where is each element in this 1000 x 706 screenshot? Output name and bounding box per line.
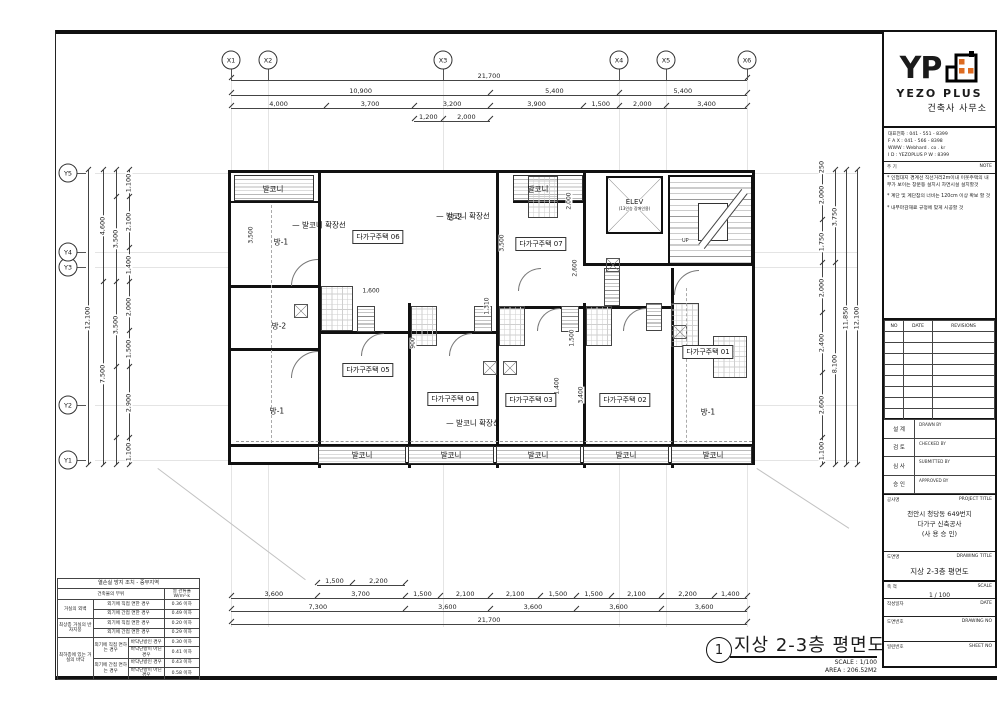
dim-label: 10,900: [349, 87, 372, 95]
thermal-col-part: 건축물의 부위: [58, 589, 165, 600]
room-label: — 발코니 확장선: [446, 418, 500, 429]
dim-tick: [86, 462, 92, 468]
room-label: 방-2: [272, 321, 286, 332]
contact-line: I D : YEZOPLUS P W : 8399: [888, 152, 991, 159]
dim-label: 2,000: [126, 296, 133, 317]
dim-tick: [114, 462, 120, 468]
floor-plan: ELEV(13인승 장애인용)UP발코니발코니— 발코니 확장선— 발코니 확장…: [228, 170, 755, 465]
dim-tick: [745, 606, 751, 612]
interior-wall: [583, 173, 586, 265]
unit-label: 다가구주택 06: [352, 230, 403, 244]
signoff-label-ko: 심 사: [884, 457, 915, 475]
dim-label: 1,400: [721, 590, 740, 598]
dim-label: 3,750: [832, 206, 839, 227]
drawing-number-circle: 1: [706, 637, 732, 663]
thermal-cond: 외기에 간접 면한 경우: [93, 628, 164, 637]
revision-cell: [885, 398, 904, 409]
revision-cell: [933, 387, 995, 398]
revision-cell: [904, 343, 933, 354]
note-label-en: NOTE: [979, 164, 992, 170]
grid-bubble-x1: X1: [222, 51, 241, 70]
dim-line: [317, 585, 405, 586]
scale-section: 축 척SCALE 1 / 100: [884, 582, 995, 599]
revision-cell: [885, 409, 904, 420]
grid-bubble-y5: Y5: [59, 164, 78, 183]
grid-bubble-y2: Y2: [59, 396, 78, 415]
washer-box: [673, 325, 687, 339]
dim-chain-r4: 12,100: [852, 170, 862, 465]
dim-tick: [488, 116, 494, 122]
signoff-label-ko: 승 인: [884, 476, 915, 494]
unit-label: 다가구주택 01: [682, 345, 733, 359]
dim-chain-t2: 10,9005,4005,400: [231, 87, 747, 97]
room-label: 발코니: [352, 450, 373, 461]
thermal-sub: 바닥난방이 아닌 경우: [129, 668, 165, 679]
dim-chain-r1: 2502,0001,7502,0002,4002,6001,100: [817, 164, 827, 465]
thermal-val: 0.58 이하: [164, 668, 200, 679]
grid-bubble-x2: X2: [259, 51, 278, 70]
dim-label: 4,000: [269, 100, 288, 108]
bathroom-tile: [499, 306, 525, 346]
revision-row: [885, 365, 995, 376]
thermal-val: 0.30 이하: [164, 637, 200, 646]
thermal-cond: 외기에 직접 면한 경우: [93, 600, 164, 609]
dim-label: 1,500: [325, 577, 344, 585]
company-name: YEZO PLUS: [896, 87, 982, 100]
bathroom-tile: [586, 306, 612, 346]
door-swing-arc: [518, 268, 541, 291]
dim-label: 21,700: [478, 616, 501, 624]
dim-label: 12,100: [85, 305, 92, 330]
revisions-table: NO DATE REVISIONS: [884, 320, 995, 420]
dim-label: 1,100: [126, 441, 133, 462]
kitchen-counter: [646, 303, 662, 331]
dim-chain-t1: 21,700: [231, 72, 747, 82]
dim-label: 2,000: [819, 185, 826, 206]
thermal-val: 0.36 이하: [164, 600, 200, 609]
grid-stem: [77, 460, 86, 461]
grid-stem: [77, 267, 86, 268]
date-label-ko: 작성일자: [887, 601, 904, 607]
thermal-cond: 외기에 간접 면하는 경우: [93, 658, 129, 679]
note-label-ko: 주 기: [887, 164, 897, 170]
kitchen-counter: [357, 306, 375, 332]
revision-cell: [885, 354, 904, 365]
dim-label: 3,600: [609, 603, 628, 611]
door-swing-arc: [449, 333, 472, 356]
company-subtitle: 건축사 사무소: [927, 101, 987, 114]
dim-label: 7,300: [308, 603, 327, 611]
project-line: (사 용 승 인): [884, 529, 995, 539]
dim-label: 12,100: [854, 305, 861, 330]
logo-yp-text: YP: [900, 55, 942, 83]
door-swing-arc: [291, 259, 318, 286]
dim-label: 1,500: [584, 590, 603, 598]
elevator-sublabel: (13인승 장애인용): [619, 206, 651, 211]
dim-label: 2,200: [678, 590, 697, 598]
revision-cell: [933, 365, 995, 376]
date-label-en: DATE: [980, 601, 992, 607]
drawing-label-en: DRAWING TITLE: [957, 554, 992, 560]
revision-cell: [904, 365, 933, 376]
drawing-no-section: 도면번호DRAWING NO: [884, 617, 995, 642]
inline-dim-label: 1,310: [484, 297, 491, 314]
dim-label: 3,600: [264, 590, 283, 598]
inline-dim-label: 3,400: [578, 386, 585, 403]
inline-dim-label: 3,500: [499, 234, 506, 251]
grid-bubble-y1: Y1: [59, 451, 78, 470]
grid-bubble-x4: X4: [610, 51, 629, 70]
signoff-label-en: DRAWN BY: [915, 420, 995, 438]
room-label: 발코니: [616, 450, 637, 461]
dim-tick: [820, 462, 826, 468]
washer-box: [483, 361, 497, 375]
dim-label: 2,400: [819, 333, 826, 354]
dim-label: 3,600: [695, 603, 714, 611]
dim-label: 21,700: [478, 72, 501, 80]
thermal-val: 0.43 이하: [164, 658, 200, 667]
dim-line: [822, 164, 823, 465]
dim-line: [231, 108, 747, 109]
drawing-title-section: 도면명DRAWING TITLE 지상 2-3층 평면도: [884, 552, 995, 582]
washer-box: [606, 258, 620, 272]
thermal-u-unit: W/m²·k: [173, 594, 190, 599]
drawing-sheet: { "colors": {"line": "#111111", "accent_…: [0, 0, 1000, 706]
dim-label: 3,400: [697, 100, 716, 108]
dim-label: 3,200: [443, 100, 462, 108]
dim-label: 2,100: [126, 212, 133, 233]
dim-chain-l4: 1,1002,1001,4002,0001,5002,9001,100: [124, 170, 134, 465]
drawing-title-text: 지상 2-3층 평면도: [734, 631, 885, 657]
revision-row: [885, 332, 995, 343]
thermal-cond: 외기에 간접 면한 경우: [93, 609, 164, 618]
dim-label: 4,600: [100, 216, 107, 237]
note-item: 인접대지 경계선 직선거리2m이내 이웃주택의 내부가 보이는 창문등 설치시 …: [887, 176, 992, 189]
project-line: 다가구 신축공사: [884, 519, 995, 529]
dim-tick: [745, 593, 751, 599]
signoff-label-ko: 검 토: [884, 439, 915, 457]
sheet-no-label-ko: 일련번호: [887, 644, 904, 650]
door-swing-arc: [623, 308, 646, 331]
revision-row: [885, 398, 995, 409]
dim-label: 5,400: [545, 87, 564, 95]
grid-stem: [443, 69, 444, 80]
thermal-title: 열손실 방지 조치 - 중부지역: [58, 579, 200, 589]
thermal-part: 최상층 거실의 반자지붕: [58, 619, 94, 638]
revision-cell: [904, 409, 933, 420]
grid-stem: [77, 173, 86, 174]
contact-line: WWW : Webhard . co . kr: [888, 145, 991, 152]
grid-stem: [747, 69, 748, 80]
dim-tick: [745, 103, 751, 109]
dim-label: 2,600: [819, 395, 826, 416]
dim-label: 1,500: [591, 100, 610, 108]
company-logo-section: YP YEZO PLUS 건축사 사무소: [884, 32, 995, 128]
balcony-extension-dashed: [686, 288, 687, 443]
dim-label: 250: [819, 160, 826, 174]
signoff-row: 심 사SUBMITTED BY: [884, 457, 995, 476]
unit-label: 다가구주택 05: [342, 363, 393, 377]
dim-tick: [833, 462, 839, 468]
drawing-no-label-en: DRAWING NO: [962, 619, 992, 625]
interior-wall: [231, 348, 318, 351]
contact-line: 대표전화 : 041 - 551 - 8399: [888, 131, 991, 138]
title-block: YP YEZO PLUS 건축사 사무소 대표전화 : 041 - 551 - …: [882, 30, 997, 668]
grid-bubble-x3: X3: [434, 51, 453, 70]
dim-tick: [844, 462, 850, 468]
dim-line: [414, 121, 490, 122]
grid-bubble-x5: X5: [657, 51, 676, 70]
thermal-val: 0.41 이하: [164, 647, 200, 658]
unit-label: 다가구주택 03: [505, 393, 556, 407]
project-label-ko: 공사명: [887, 497, 899, 503]
dim-chain-l2: 4,6007,500: [98, 170, 108, 465]
dim-line: [231, 80, 747, 81]
dim-line: [103, 170, 104, 465]
room-label: — 발코니 확장선: [292, 220, 346, 231]
revision-cell: [933, 343, 995, 354]
room-label: 발코니: [441, 450, 462, 461]
dim-label: 5,400: [673, 87, 692, 95]
unit-label: 다가구주택 02: [599, 393, 650, 407]
thermal-sub: 바닥난방인 경우: [129, 637, 165, 646]
dim-label: 1,200: [419, 113, 438, 121]
dim-chain-r2: 3,7508,100: [830, 170, 840, 465]
dim-line: [231, 624, 747, 625]
dim-label: 3,900: [527, 100, 546, 108]
door-swing-arc: [361, 333, 384, 356]
room-label: 발코니: [528, 450, 549, 461]
signoff-row: 설 계DRAWN BY: [884, 420, 995, 439]
thermal-val: 0.29 이하: [164, 628, 200, 637]
dim-chain-b2: 3,6003,7001,5002,1002,1001,5001,5002,100…: [231, 590, 747, 600]
inline-dim-label: 3,500: [248, 226, 255, 243]
grid-stem: [268, 69, 269, 80]
elevator-label: ELEV: [626, 199, 644, 206]
thermal-insulation-table: 열손실 방지 조치 - 중부지역 건축물의 부위 열 관류율W/m²·k 거실의…: [57, 578, 200, 680]
project-section: 공사명PROJECT TITLE 천안시 청당동 649번지다가구 신축공사(사…: [884, 495, 995, 552]
revision-row: [885, 376, 995, 387]
thermal-cond: 외기에 직접 면하는 경우: [93, 637, 129, 658]
drawing-label-ko: 도면명: [887, 554, 899, 560]
interior-wall: [671, 268, 674, 468]
project-line: 천안시 청당동 649번지: [884, 509, 995, 519]
dim-chain-r3: 11,850: [841, 170, 851, 465]
dim-line: [231, 611, 747, 612]
stair-up-label: UP: [682, 239, 689, 244]
revision-row: [885, 343, 995, 354]
scale-value: 1 / 100: [884, 592, 995, 599]
dim-label: 7,500: [100, 363, 107, 384]
kitchen-counter: [561, 306, 579, 332]
signoff-label-en: CHECKED BY: [915, 439, 995, 457]
rev-col-date: DATE: [904, 321, 933, 332]
sheet-no-section: 일련번호SHEET NO: [884, 642, 995, 663]
revisions-section: NO DATE REVISIONS: [884, 320, 995, 420]
notes-section: 인접대지 경계선 직선거리2m이내 이웃주택의 내부가 보이는 창문등 설치시 …: [884, 174, 995, 320]
stairwell: UP: [668, 175, 753, 265]
dim-label: 1,100: [126, 173, 133, 194]
revision-cell: [933, 398, 995, 409]
door-swing-arc: [537, 308, 560, 331]
dim-tick: [127, 462, 133, 468]
rev-col-revisions: REVISIONS: [933, 321, 995, 332]
dim-tick: [402, 580, 408, 586]
note-item: 내부마감재료 규정에 맞게 시공할 것: [887, 206, 992, 213]
revision-row: [885, 387, 995, 398]
thermal-val: 0.49 이하: [164, 609, 200, 618]
contact-line: F A X : 041 - 566 - 8398: [888, 138, 991, 145]
revision-cell: [933, 376, 995, 387]
revision-cell: [904, 376, 933, 387]
thermal-val: 0.20 이하: [164, 619, 200, 628]
signoff-label-en: SUBMITTED BY: [915, 457, 995, 475]
dim-label: 8,100: [832, 354, 839, 375]
dim-label: 2,000: [633, 100, 652, 108]
dim-line: [231, 598, 747, 599]
dim-label: 1,500: [413, 590, 432, 598]
revision-row: [885, 354, 995, 365]
room-label: 방-1: [274, 237, 288, 248]
dim-label: 2,000: [819, 278, 826, 299]
dim-label: 1,100: [819, 441, 826, 462]
dim-tick: [745, 619, 751, 625]
thermal-part: 거실의 외벽: [58, 600, 94, 619]
dim-chain-b4: 21,700: [231, 616, 747, 626]
revision-cell: [885, 343, 904, 354]
signoff-section: 설 계DRAWN BY검 토CHECKED BY심 사SUBMITTED BY승…: [884, 420, 995, 495]
dim-line: [231, 95, 747, 96]
dim-chain-l3: 3,5003,500: [111, 170, 121, 465]
inline-dim-label: 2,000: [566, 192, 573, 209]
note-item: 계단 및 계단참의 너비는 120cm 이상 확보 할 것: [887, 194, 992, 201]
dim-label: 2,900: [126, 393, 133, 414]
grid-stem: [619, 69, 620, 80]
signoff-label-en: APPROVED BY: [915, 476, 995, 494]
dim-label: 3,500: [113, 229, 120, 250]
rev-col-no: NO: [885, 321, 904, 332]
dim-label: 3,700: [351, 590, 370, 598]
dim-tick: [855, 462, 861, 468]
thermal-part: 최하층에 있는 거실의 바닥: [58, 637, 94, 679]
room-label: 방-2: [448, 212, 462, 223]
revision-cell: [933, 354, 995, 365]
dim-tick: [745, 90, 751, 96]
washer-box: [503, 361, 517, 375]
bathroom-tile: [528, 176, 558, 218]
inline-dim-label: 2,600: [572, 259, 579, 276]
grid-stem: [77, 252, 86, 253]
signoff-row: 검 토CHECKED BY: [884, 439, 995, 458]
kitchen-counter: [604, 268, 620, 306]
dim-label: 1,500: [549, 590, 568, 598]
interior-wall: [231, 201, 318, 203]
revision-cell: [904, 398, 933, 409]
contact-info: 대표전화 : 041 - 551 - 8399F A X : 041 - 566…: [884, 128, 995, 162]
dim-chain-b1: 1,5002,200: [317, 577, 405, 587]
thermal-col-u: 열 관류율W/m²·k: [164, 589, 200, 600]
dim-chain-l1: 12,100: [83, 170, 93, 465]
revision-cell: [885, 387, 904, 398]
project-title: 천안시 청당동 649번지다가구 신축공사(사 용 승 인): [884, 509, 995, 539]
dim-chain-b3: 7,3003,6003,6003,6003,600: [231, 603, 747, 613]
dim-label: 1,500: [126, 339, 133, 360]
building-logo-icon: [945, 51, 979, 83]
drawing-area: AREA : 206.52M2: [825, 667, 877, 675]
signoff-row: 승 인APPROVED BY: [884, 476, 995, 495]
drawing-title-value: 지상 2-3층 평면도: [884, 566, 995, 577]
grid-bubble-x6: X6: [738, 51, 757, 70]
inline-dim-label: 900: [410, 337, 417, 348]
thermal-cond: 외기에 직접 면한 경우: [93, 619, 164, 628]
room-label: — 발코니 확장선: [436, 211, 490, 222]
title-underline: [730, 656, 877, 658]
unit-label: 다가구주택 04: [427, 392, 478, 406]
dim-label: 11,850: [843, 305, 850, 330]
dim-label: 2,000: [457, 113, 476, 121]
inline-dim-label: 1,600: [362, 288, 379, 295]
grid-bubble-y4: Y4: [59, 243, 78, 262]
revision-cell: [904, 387, 933, 398]
dim-label: 1,400: [126, 255, 133, 276]
revision-cell: [904, 332, 933, 343]
revision-cell: [904, 354, 933, 365]
dim-label: 2,100: [627, 590, 646, 598]
dim-chain-t3: 4,0003,7003,2003,9001,5002,0003,400: [231, 100, 747, 110]
dim-label: 1,750: [819, 231, 826, 252]
scale-label-ko: 축 척: [887, 584, 897, 590]
grid-stem: [231, 69, 232, 80]
dim-label: 3,700: [361, 100, 380, 108]
revision-cell: [933, 409, 995, 420]
door-swing-arc: [291, 351, 318, 378]
revision-cell: [933, 332, 995, 343]
dim-label: 2,100: [456, 590, 475, 598]
room-label: 방-1: [270, 406, 284, 417]
unit-label: 다가구주택 07: [515, 237, 566, 251]
sheet-no-label-en: SHEET NO: [969, 644, 992, 650]
dim-label: 3,500: [113, 315, 120, 336]
grid-stem: [666, 69, 667, 80]
drawing-scale: SCALE : 1/100: [825, 659, 877, 667]
dim-label: 3,600: [438, 603, 457, 611]
dim-label: 2,100: [506, 590, 525, 598]
project-label-en: PROJECT TITLE: [959, 497, 992, 503]
scale-label-en: SCALE: [978, 584, 992, 590]
thermal-sub: 바닥난방이 아닌 경우: [129, 647, 165, 658]
dim-label: 2,200: [369, 577, 388, 585]
note-header: 주 기NOTE: [884, 162, 995, 174]
balcony-extension-dashed: [236, 441, 752, 442]
revision-row: [885, 409, 995, 420]
washer-box: [294, 304, 308, 318]
elevator-shaft: ELEV(13인승 장애인용): [606, 176, 663, 234]
signoff-label-ko: 설 계: [884, 420, 915, 438]
date-section: 작성일자DATE: [884, 599, 995, 617]
grid-stem: [77, 405, 86, 406]
revision-cell: [885, 365, 904, 376]
dim-label: 3,600: [524, 603, 543, 611]
room-label: 발코니: [528, 184, 549, 195]
inline-dim-label: 1,500: [569, 329, 576, 346]
room-label: 방-1: [701, 407, 715, 418]
thermal-sub: 바닥난방인 경우: [129, 658, 165, 667]
dim-tick: [101, 462, 107, 468]
room-label: 발코니: [263, 184, 284, 195]
revision-cell: [885, 376, 904, 387]
bathroom-tile: [321, 286, 353, 331]
revision-cell: [885, 332, 904, 343]
